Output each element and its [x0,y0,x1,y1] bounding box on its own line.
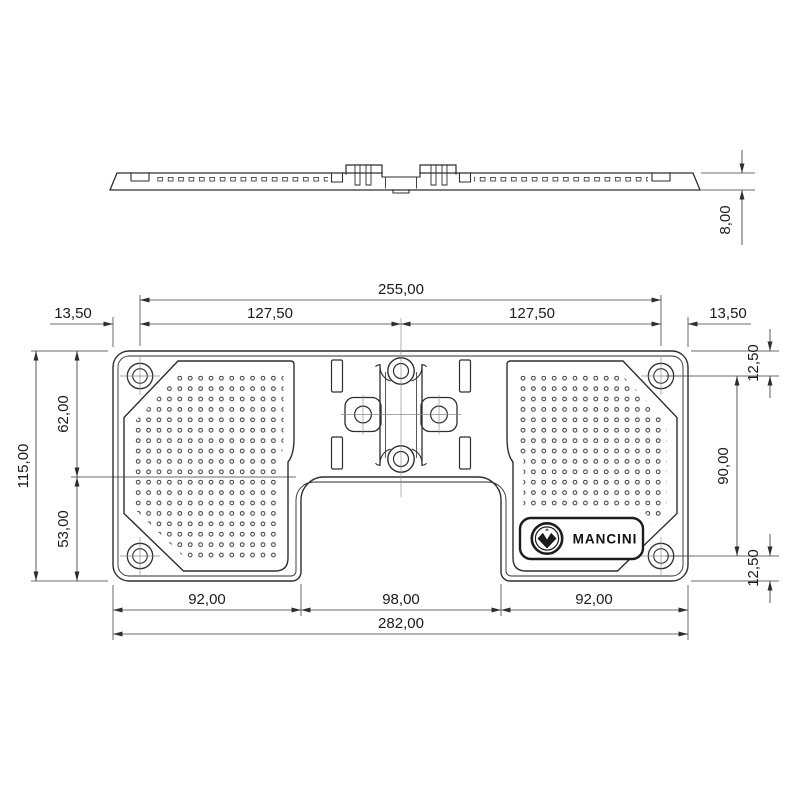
drawing-canvas: 8,00 MANCINI [0,0,800,800]
mount-slot [332,437,343,469]
dim-label: 13,50 [54,305,92,322]
brand-plate: MANCINI [520,518,643,559]
dim-left-half: 127,50 [140,305,401,324]
hinge-assembly [332,318,471,497]
dim-label: 92,00 [575,591,613,608]
mount-slot [460,360,471,392]
dim-right-edge: 13,50 [688,305,751,324]
mount-slot [460,437,471,469]
dim-label: 53,00 [55,510,72,548]
dim-hole-span-top: 255,00 [140,281,661,300]
dim-label: 92,00 [188,591,226,608]
plan-view: MANCINI [15,281,779,640]
brand-logo-icon [532,523,562,553]
dim-label: 90,00 [715,447,732,485]
left-pad-texture [124,361,294,571]
technical-drawing: 8,00 MANCINI [0,0,800,800]
dim-top-offset: 12,50 [745,329,770,398]
dim-label: 115,00 [15,444,32,489]
dim-label: 62,00 [55,395,72,433]
profile-slot-channel [460,172,471,182]
dim-left-pad-width: 92,00 [113,591,301,610]
dim-hole-span-right: 90,00 [715,376,737,556]
dim-label: 127,50 [509,305,555,322]
mount-slot [332,360,343,392]
dim-notch-width: 98,00 [301,591,501,610]
dim-thickness: 8,00 [701,150,755,245]
dim-label: 98,00 [382,591,420,608]
profile-texture-left [155,177,328,182]
profile-hole-channel [131,172,149,181]
dim-thickness-label: 8,00 [717,205,734,234]
dim-right-pad-width: 92,00 [501,591,688,610]
profile-slot-channel [332,172,343,182]
dim-label: 12,50 [745,549,762,587]
dim-upper-height: 62,00 [55,351,77,477]
profile-texture-right [474,177,648,182]
dim-lower-height: 53,00 [55,477,77,581]
dim-label: 255,00 [378,281,424,298]
dim-left-edge: 13,50 [50,305,113,324]
dim-height: 115,00 [15,351,36,581]
dim-label: 127,50 [247,305,293,322]
dim-label: 12,50 [745,344,762,382]
brand-label: MANCINI [573,532,638,547]
dim-bottom-offset: 12,50 [745,534,770,603]
dim-right-half: 127,50 [401,305,661,324]
side-view: 8,00 [110,150,755,245]
profile-hole-channel [652,172,670,181]
dim-label: 282,00 [378,615,424,632]
dim-label: 13,50 [709,305,747,322]
dim-overall-width: 282,00 [113,615,688,634]
